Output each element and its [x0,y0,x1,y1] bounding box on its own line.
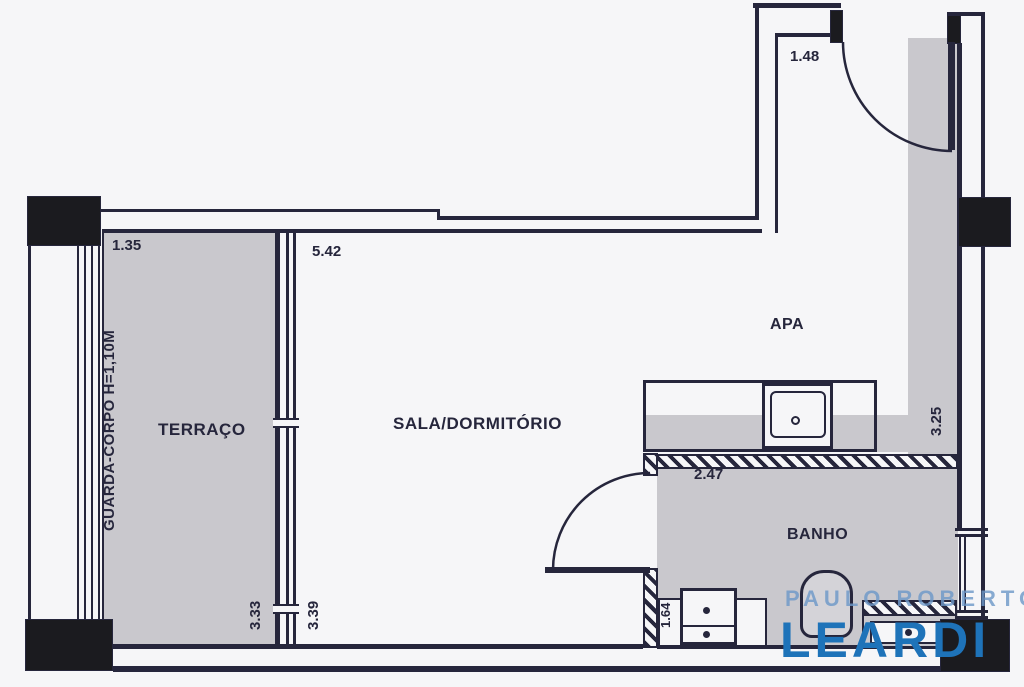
kitchen-counter [643,380,877,452]
sala-label: SALA/DORMITÓRIO [393,414,562,434]
kitchen-sink-drain [791,416,800,425]
floor-plan: TERRAÇO SALA/DORMITÓRIO APA BANHO GUARDA… [0,0,1024,687]
wall-bottom-inner [102,644,643,649]
banho-wall-hatched-left [643,568,658,648]
wall-top-thin [100,209,437,212]
entry-inner-ledge [775,33,835,37]
guard-rail-note: GUARDA-CORPO H=1,10M [101,293,118,568]
guard-rail-line-3 [91,246,93,620]
dim-terraco-width: 1.35 [112,237,141,254]
terraco-window-stile-bot [273,604,299,614]
guard-rail-line-2 [84,246,86,620]
terraco-window-track-2 [286,233,289,648]
terraco-window-track-1 [277,233,280,648]
entry-door-jamb-right [947,12,961,44]
terraco-window-track-3 [293,233,296,648]
entry-wall-outer [755,3,759,219]
dim-banho-wall: 2.47 [694,466,723,483]
apa-label: APA [770,316,804,334]
banho-label: BANHO [787,526,848,544]
wall-top-outer [437,216,759,220]
column-top-right [958,197,1011,247]
entry-door-jamb-left [830,10,843,43]
vanity-cabinet-divider [682,625,735,627]
watermark-line2: LEARDI [780,611,990,669]
vanity-knob-top [703,607,710,614]
watermark-line1: PAULO ROBERTO [785,586,1024,612]
column-bottom-left [25,619,113,671]
guard-rail-line-1 [77,246,79,620]
wall-right-cap [947,12,985,16]
terraco-window-stile-mid [273,418,299,428]
wall-top-inner [102,229,762,233]
dim-sala-width: 5.42 [312,243,341,260]
entry-door-leaf [948,42,955,150]
banho-door-jamb [643,453,658,476]
column-top-left [27,196,101,246]
wall-right-outer [981,13,985,672]
vanity-knob-bottom [703,631,710,638]
terraco-label: TERRAÇO [158,420,246,440]
dim-entry-door: 1.48 [790,48,819,65]
dim-right-wall: 3.25 [928,400,945,442]
banho-door-arc [553,473,650,570]
dim-terraco-depth: 3.33 [247,596,264,634]
wall-left-outer [28,246,31,620]
entry-wall-inner [775,33,778,233]
kitchen-sink-inner [770,391,826,438]
right-window-sill-top-a [955,528,988,531]
dim-sala-depth: 3.39 [305,596,322,634]
guard-rail-line-4 [98,246,100,620]
banho-door-leaf [545,567,650,573]
entry-top-cap [753,3,841,8]
dim-vanity-width: 1.64 [658,597,673,633]
